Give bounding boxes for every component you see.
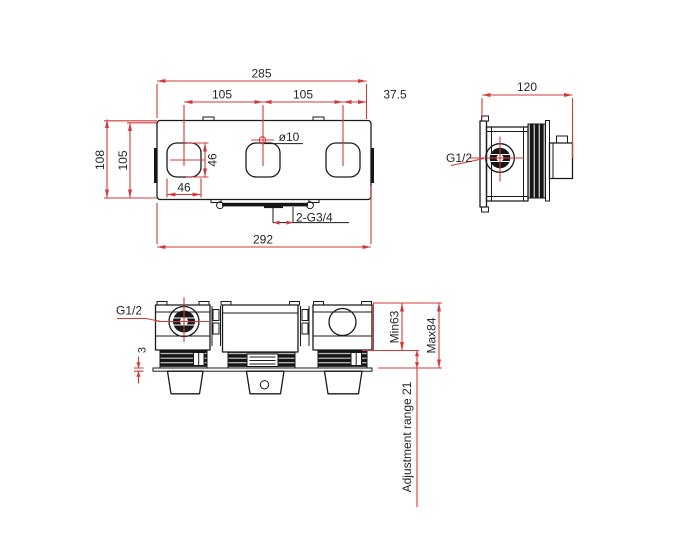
outlet-spout-left xyxy=(168,371,204,394)
wall-flange xyxy=(480,121,487,207)
dim-min-depth-label: Min63 xyxy=(388,310,402,343)
bottom-view: G1/2 3 Min63 Max84 Adjustment range 21 xyxy=(116,298,442,508)
dim-edge-offset-label: 37.5 xyxy=(383,88,407,102)
middle-valve-body xyxy=(223,305,299,352)
outlet-spout-middle xyxy=(247,371,285,394)
dim-width-label: 285 xyxy=(251,67,271,81)
bottom-body-outline xyxy=(153,302,372,394)
front-plate-outline xyxy=(154,117,374,223)
dim-pitch-left-label: 105 xyxy=(212,88,232,102)
dim-handle-height-label: 46 xyxy=(206,153,220,167)
dim-hole-diameter-label: ø10 xyxy=(279,130,300,144)
dim-max-depth-label: Max84 xyxy=(425,317,439,353)
inlet-thread-label-bottom: G1/2 xyxy=(116,304,142,318)
side-tab-right xyxy=(371,148,374,183)
dim-handle-width-label: 46 xyxy=(177,181,191,195)
outlet-spout-right xyxy=(325,371,363,394)
side-dimension-lines xyxy=(451,95,573,182)
dim-depth-label: 120 xyxy=(517,80,537,94)
dim-plate-thickness-label: 3 xyxy=(137,347,149,353)
side-view: 120 G1/2 xyxy=(446,80,573,212)
outlet-thread-label: 2-G3/4 xyxy=(296,210,333,224)
dim-overall-width-label: 292 xyxy=(253,233,273,247)
knob-tab xyxy=(557,136,568,143)
front-view: 285 105 105 37.5 108 105 46 46 ø10 2-G3/… xyxy=(93,67,407,248)
technical-drawing: 285 105 105 37.5 108 105 46 46 ø10 2-G3/… xyxy=(0,0,674,560)
side-tab-left xyxy=(154,148,157,183)
right-port-circle xyxy=(329,309,356,336)
dim-pitch-right-label: 105 xyxy=(293,88,313,102)
dim-adjustment-range-label: Adjustment range 21 xyxy=(400,381,414,492)
side-body-outline xyxy=(480,116,573,212)
cartridge-hatch xyxy=(528,124,546,198)
dim-plate-height-label: 105 xyxy=(116,150,130,170)
inlet-thread-label-side: G1/2 xyxy=(446,151,472,165)
dim-overall-height-label: 108 xyxy=(93,150,107,170)
